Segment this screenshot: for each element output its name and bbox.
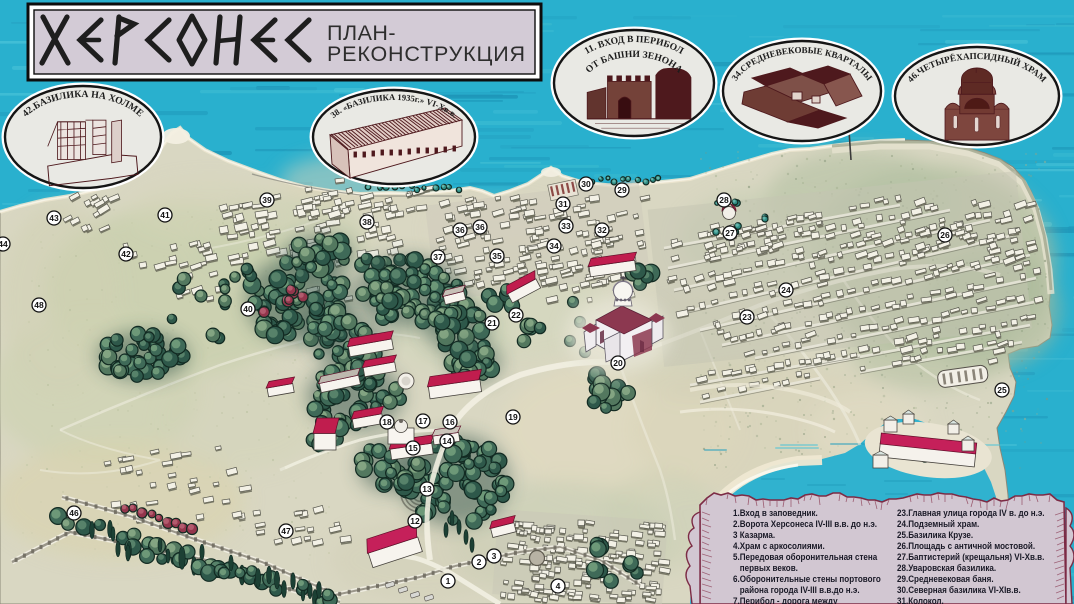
svg-text:2.Ворота Херсонеса IV-III в.в.: 2.Ворота Херсонеса IV-III в.в. до н.э. [733, 518, 877, 529]
svg-text:27.Баптистерий (крещальня) VI-: 27.Баптистерий (крещальня) VI-Хв.в. [897, 551, 1044, 562]
svg-text:23: 23 [742, 312, 752, 322]
svg-text:35: 35 [492, 251, 502, 261]
svg-text:18: 18 [382, 417, 392, 427]
svg-text:25: 25 [997, 385, 1007, 395]
svg-text:24: 24 [781, 285, 791, 295]
svg-text:36: 36 [455, 225, 465, 235]
svg-text:РЕКОНСТРУКЦИЯ: РЕКОНСТРУКЦИЯ [327, 42, 525, 66]
svg-text:28: 28 [719, 195, 729, 205]
svg-text:15: 15 [408, 443, 418, 453]
svg-text:5.Передовая оборонительная сте: 5.Передовая оборонительная стена [733, 551, 877, 562]
svg-text:29: 29 [617, 185, 627, 195]
svg-text:24.Подземный храм.: 24.Подземный храм. [897, 518, 979, 529]
svg-text:12: 12 [410, 516, 420, 526]
svg-text:26: 26 [940, 230, 950, 240]
svg-text:27: 27 [725, 228, 735, 238]
svg-text:33: 33 [561, 221, 571, 231]
svg-text:19: 19 [508, 412, 518, 422]
svg-text:31.Колокол.: 31.Колокол. [897, 595, 944, 604]
svg-text:4.Храм с аркосолиями.: 4.Храм с аркосолиями. [733, 540, 825, 551]
svg-text:43: 43 [49, 213, 59, 223]
svg-text:39: 39 [262, 195, 272, 205]
svg-text:47: 47 [281, 526, 291, 536]
svg-text:района города IV-III в.в.до н.: района города IV-III в.в.до н.э. [733, 584, 860, 595]
svg-text:40: 40 [243, 304, 253, 314]
svg-text:14: 14 [442, 436, 452, 446]
svg-text:30: 30 [581, 179, 591, 189]
svg-text:36: 36 [475, 222, 485, 232]
svg-text:16: 16 [445, 417, 455, 427]
svg-text:34: 34 [549, 241, 559, 251]
svg-text:23.Главная улица города IV в.: 23.Главная улица города IV в. до н.э. [897, 507, 1045, 518]
svg-text:20: 20 [613, 358, 623, 368]
svg-text:1: 1 [446, 576, 451, 586]
svg-text:2: 2 [477, 557, 482, 567]
svg-text:32: 32 [597, 225, 607, 235]
svg-text:25.Базилика Крузе.: 25.Базилика Крузе. [897, 529, 973, 540]
svg-text:41: 41 [160, 210, 170, 220]
svg-text:28.Уваровская базилика.: 28.Уваровская базилика. [897, 562, 996, 573]
svg-text:37: 37 [433, 252, 443, 262]
svg-text:44: 44 [0, 239, 8, 249]
svg-text:30.Северная базилика VI-XIв.в.: 30.Северная базилика VI-XIв.в. [897, 584, 1021, 595]
svg-text:13: 13 [422, 484, 432, 494]
svg-text:21: 21 [487, 318, 497, 328]
svg-text:4: 4 [556, 581, 561, 591]
svg-text:первых веков.: первых веков. [733, 562, 798, 573]
svg-text:48: 48 [34, 300, 44, 310]
svg-text:38: 38 [362, 217, 372, 227]
svg-text:3 Казарма.: 3 Казарма. [733, 529, 775, 540]
svg-text:3: 3 [492, 551, 497, 561]
svg-text:22: 22 [511, 310, 521, 320]
svg-text:26.Площадь с античной мостовой: 26.Площадь с античной мостовой. [897, 540, 1035, 551]
svg-text:46: 46 [69, 508, 79, 518]
svg-text:31: 31 [558, 199, 568, 209]
svg-text:42: 42 [121, 249, 131, 259]
svg-text:1.Вход в заповедник.: 1.Вход в заповедник. [733, 507, 818, 518]
svg-text:17: 17 [418, 416, 428, 426]
svg-text:7.Перибол - дорога между: 7.Перибол - дорога между [733, 595, 838, 604]
svg-text:6.Оборонительные стены портово: 6.Оборонительные стены портового [733, 573, 881, 584]
svg-text:29.Средневековая баня.: 29.Средневековая баня. [897, 573, 994, 584]
